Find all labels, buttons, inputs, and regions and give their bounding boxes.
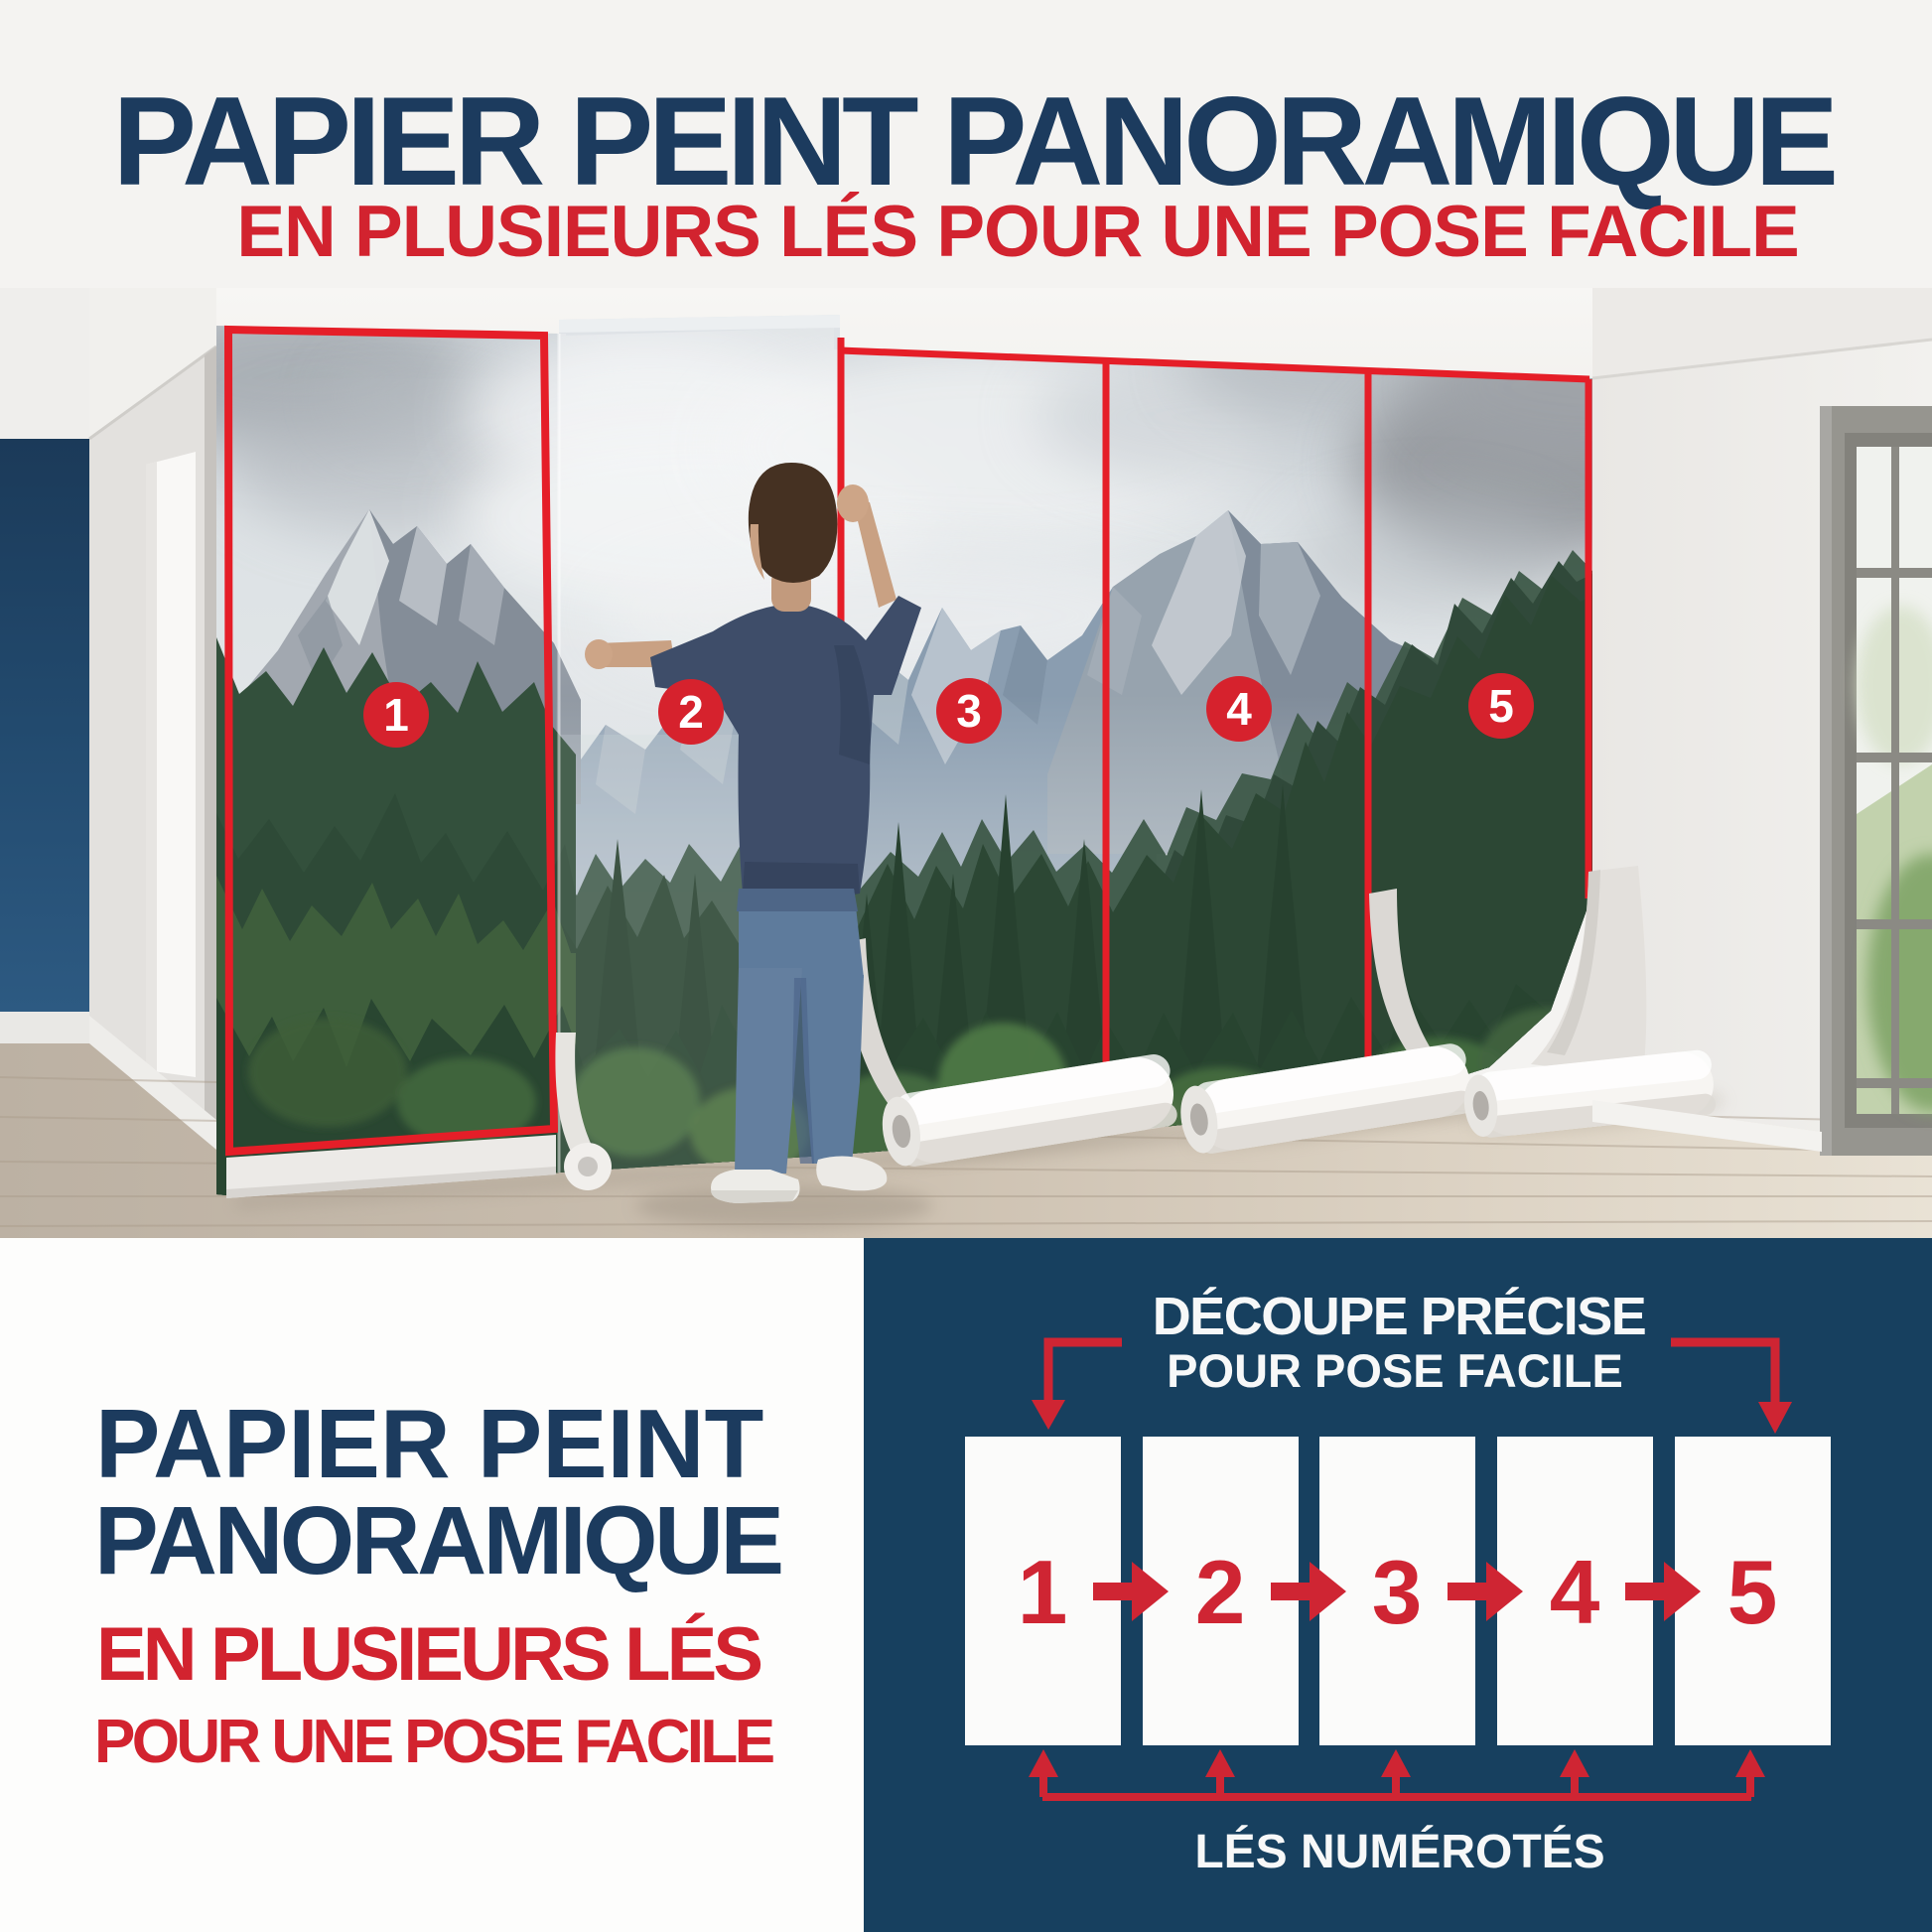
svg-text:2: 2 (1195, 1543, 1246, 1643)
svg-text:POUR UNE POSE FACILE: POUR UNE POSE FACILE (94, 1708, 773, 1776)
svg-text:4: 4 (1550, 1543, 1600, 1643)
svg-text:PAPIER PEINT PANORAMIQUE: PAPIER PEINT PANORAMIQUE (112, 70, 1834, 211)
svg-text:POUR POSE FACILE: POUR POSE FACILE (1167, 1344, 1623, 1397)
svg-text:4: 4 (1226, 683, 1252, 735)
svg-text:5: 5 (1727, 1543, 1778, 1643)
svg-text:PAPIER PEINT: PAPIER PEINT (95, 1389, 763, 1498)
svg-text:EN PLUSIEURS LÉS POUR UNE POSE: EN PLUSIEURS LÉS POUR UNE POSE FACILE (236, 192, 1798, 272)
svg-text:LÉS NUMÉROTÉS: LÉS NUMÉROTÉS (1194, 1825, 1604, 1878)
svg-text:DÉCOUPE PRÉCISE: DÉCOUPE PRÉCISE (1153, 1287, 1646, 1346)
svg-text:1: 1 (383, 689, 409, 741)
svg-text:3: 3 (1372, 1543, 1423, 1643)
svg-text:PANORAMIQUE: PANORAMIQUE (94, 1486, 781, 1594)
svg-text:1: 1 (1018, 1543, 1068, 1643)
svg-text:EN PLUSIEURS LÉS: EN PLUSIEURS LÉS (96, 1612, 760, 1697)
svg-text:2: 2 (678, 686, 704, 738)
svg-text:3: 3 (956, 685, 982, 737)
svg-text:5: 5 (1488, 680, 1514, 732)
